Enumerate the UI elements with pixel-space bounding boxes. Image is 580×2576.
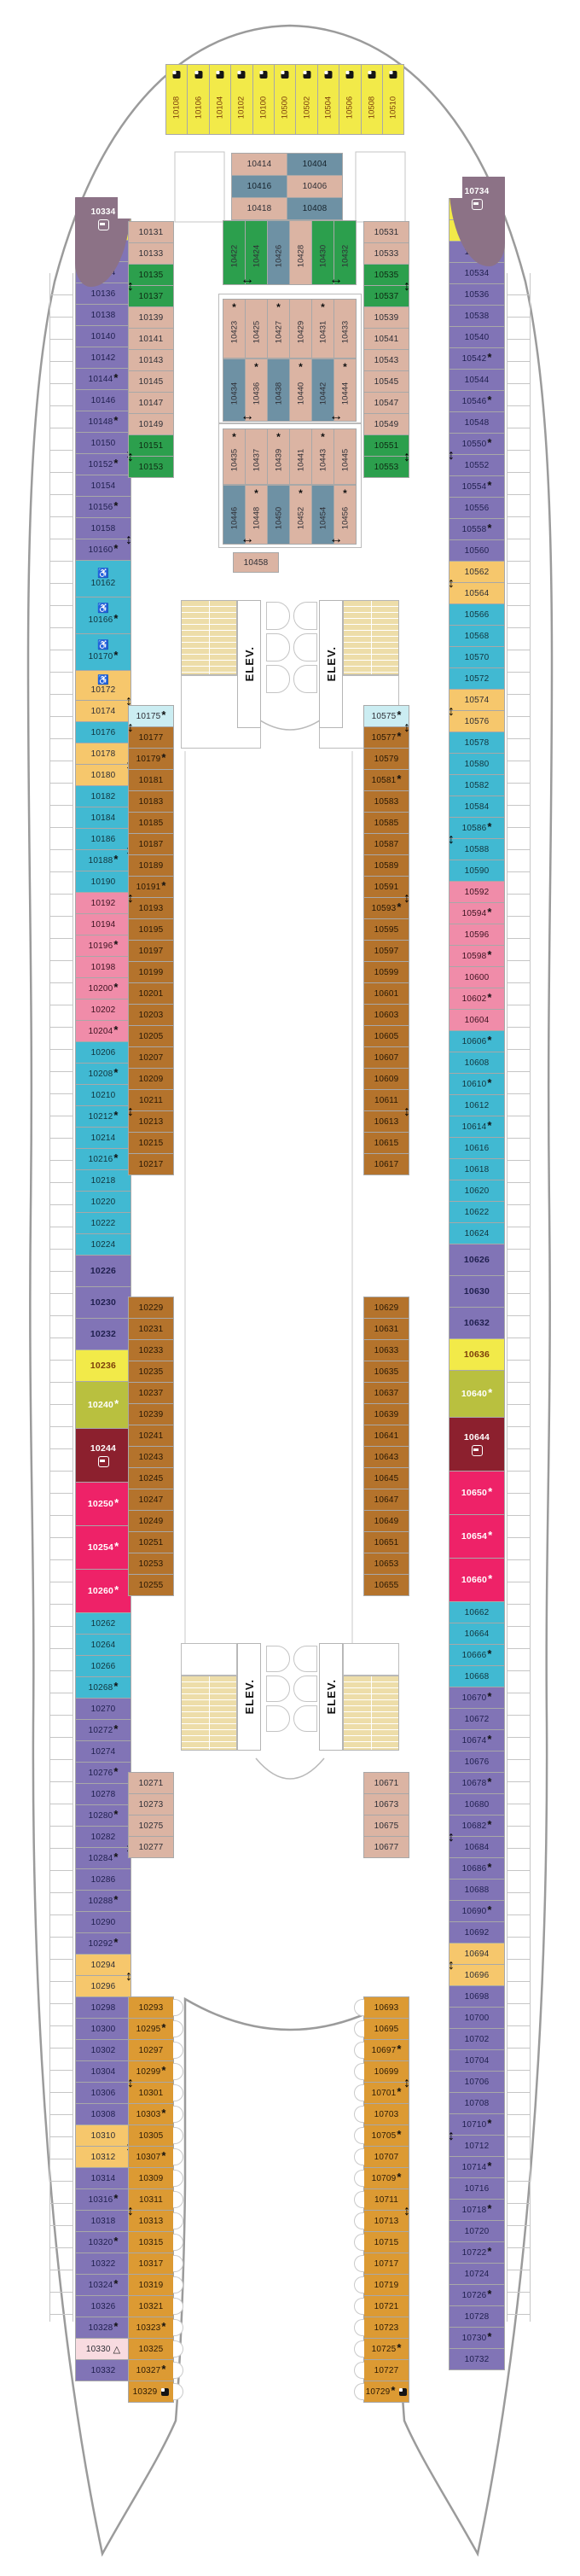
cabin-number: 10616: [465, 1144, 490, 1153]
third-berth-asterisk: *: [299, 487, 303, 499]
cabin-10554: 10554*: [449, 475, 505, 498]
cabin-10723: 10723: [363, 2317, 409, 2339]
third-berth-asterisk: *: [487, 1034, 491, 1046]
cabin-number: 10140: [91, 332, 116, 341]
cabin-number: 10725: [372, 2345, 397, 2354]
cabin-10300: 10300: [75, 2018, 131, 2040]
cabin-number: 10710: [462, 2120, 487, 2130]
third-berth-asterisk: *: [276, 301, 281, 313]
window-icon: [259, 71, 267, 79]
cabin-number: 10222: [91, 1219, 116, 1228]
cabin-number: 10688: [465, 1885, 490, 1895]
cabin-10235: 10235: [128, 1361, 174, 1383]
cabin-10284: 10284*: [75, 1847, 131, 1869]
cabin-10703: 10703: [363, 2103, 409, 2125]
cabin-10253: 10253: [128, 1553, 174, 1575]
cabin-number: 10693: [374, 2003, 399, 2013]
third-berth-asterisk: *: [487, 1647, 491, 1660]
cabin-number: 10145: [139, 377, 164, 387]
cabin-10575: 10575*↕: [363, 705, 409, 727]
cabin-number: 10703: [374, 2110, 399, 2119]
cabin-number: 10564: [465, 589, 490, 598]
cabin-number: 10694: [465, 1949, 490, 1959]
cabin-10174: 10174: [75, 700, 131, 722]
cabin-10660: 10660*: [449, 1558, 505, 1602]
cabin-10719: 10719: [363, 2274, 409, 2296]
cabin-10282: 10282↕: [75, 1826, 131, 1848]
cabin-number: 10166: [89, 615, 113, 625]
cabin-number: 10156: [89, 503, 113, 512]
third-berth-asterisk: *: [113, 2235, 118, 2247]
window-icon: [161, 2388, 169, 2396]
cabin-number: 10408: [303, 204, 328, 213]
cabin-number: 10640: [461, 1389, 487, 1399]
cabin-number: 10508: [367, 96, 376, 119]
cabin-10136: 10136: [75, 283, 131, 305]
cabin-number: 10684: [465, 1843, 490, 1852]
cabin-number: 10217: [139, 1160, 164, 1169]
cabin-section: 10671106731067510677: [363, 1773, 409, 1858]
wheelchair-icon: ♿: [97, 569, 109, 580]
cabin-10542: 10542*: [449, 347, 505, 370]
cabin-10566: 10566: [449, 603, 505, 626]
third-berth-asterisk: *: [487, 1076, 491, 1089]
connecting-staterooms-arrow: ↕: [448, 2130, 455, 2143]
cabin-10215: 10215: [128, 1132, 174, 1154]
cabin-number: 10243: [139, 1453, 164, 1462]
cabin-10197: 10197: [128, 940, 174, 962]
cabin-number: 10704: [465, 2056, 490, 2066]
cabin-number: 10729: [366, 2387, 391, 2397]
cabin-number: 10568: [465, 632, 490, 641]
cabin-number: 10428: [296, 245, 305, 267]
cabin-10641: 10641: [363, 1425, 409, 1447]
third-berth-asterisk: *: [487, 1775, 491, 1788]
cabin-number: 10255: [139, 1581, 164, 1590]
connecting-staterooms-arrow: ↕: [127, 721, 134, 735]
cabin-10597: 10597: [363, 940, 409, 962]
cabin-10196: 10196*: [75, 935, 131, 957]
cabin-number: 10554: [462, 482, 487, 492]
third-berth-asterisk: *: [113, 1151, 118, 1164]
service-room: [181, 1643, 237, 1676]
cabin-10605: 10605: [363, 1025, 409, 1047]
cabin-number: 10653: [374, 1559, 399, 1569]
cabin-number: 10322: [91, 2259, 116, 2269]
connecting-staterooms-arrow: ↕: [403, 451, 410, 464]
cabin-number: 10310: [91, 2131, 116, 2141]
cabin-10260: 10260*: [75, 1569, 131, 1613]
cabin-number: 10272: [89, 1726, 113, 1735]
cabin-number: 10329: [133, 2387, 158, 2397]
cabin-number: 10578: [465, 738, 490, 748]
cabin-number: 10585: [374, 819, 399, 828]
cabin-number: 10635: [374, 1367, 399, 1377]
cabin-10301: 10301: [128, 2082, 174, 2104]
cabin-10633: 10633: [363, 1339, 409, 1361]
window-icon: [173, 71, 181, 79]
window-icon: [303, 71, 310, 79]
cabin-number: 10612: [465, 1101, 490, 1110]
cabin-10728: 10728: [449, 2305, 505, 2328]
connecting-staterooms-arrow: ↔: [241, 273, 254, 287]
cabin-number: 10576: [465, 717, 490, 726]
cabin-10295: 10295*: [128, 2018, 174, 2040]
cabin-10450: 10450: [267, 485, 290, 545]
cabin-number: 10324: [89, 2281, 113, 2290]
cabin-number: 10301: [139, 2089, 164, 2098]
cabin-10433: 10433: [333, 299, 357, 358]
cabin-10604: 10604: [449, 1009, 505, 1031]
cabin-10506: 10506: [339, 64, 361, 135]
cabin-section: 10575*↕10577*1057910581*1058310585105871…: [363, 706, 409, 1175]
cabin-number: 10278: [91, 1790, 116, 1799]
cabin-number: 10548: [465, 418, 490, 428]
cabin-number: 10626: [464, 1255, 490, 1265]
stairs-mid-port: [181, 1676, 237, 1751]
cabin-number: 10639: [374, 1410, 399, 1419]
suite-icon: [98, 219, 109, 230]
cabin-10142: 10142: [75, 347, 131, 369]
cabin-10536: 10536: [449, 283, 505, 306]
cabin-10100: 10100: [252, 64, 275, 135]
cabin-10158: 10158↕: [75, 517, 131, 539]
connecting-staterooms-arrow: ↕: [127, 1105, 134, 1119]
forward-interior-pairs: 104141040410416104061041810408: [232, 154, 343, 220]
third-berth-asterisk: *: [113, 938, 118, 951]
cabin-number: 10702: [465, 2035, 490, 2044]
cabin-10693: 10693: [363, 1996, 409, 2019]
cabin-number: 10320: [89, 2238, 113, 2247]
cabin-10692: 10692: [449, 1921, 505, 1944]
cabin-number: 10666: [462, 1651, 487, 1660]
cabin-10626: 10626: [449, 1244, 505, 1276]
cabin-number: 10268: [89, 1683, 113, 1693]
cabin-10302: 10302: [75, 2039, 131, 2061]
third-berth-asterisk: *: [487, 1119, 491, 1132]
cabin-10674: 10674*: [449, 1729, 505, 1751]
cabin-number: 10206: [91, 1048, 116, 1058]
cabin-10166: ♿10166*: [75, 597, 131, 634]
cabin-10670: 10670*: [449, 1687, 505, 1709]
cabin-number: 10204: [89, 1027, 113, 1036]
cabin-section: 101311013310135↕101371013910141101431014…: [128, 222, 174, 478]
cabin-number: 10184: [91, 813, 116, 823]
cabin-10587: 10587: [363, 833, 409, 855]
cabin-10243: 10243: [128, 1446, 174, 1468]
stairs-forward-stbd: [343, 600, 399, 675]
cabin-number: 10662: [465, 1608, 490, 1617]
interior-vertical-block: 10434↔*1043610438*1044010442↔*10444: [223, 358, 357, 422]
cabin-number: 10193: [139, 904, 164, 913]
cabin-10216: 10216*: [75, 1148, 131, 1170]
cabin-number: 10696: [465, 1971, 490, 1980]
cabin-10608: 10608: [449, 1052, 505, 1074]
cabin-10207: 10207: [128, 1046, 174, 1069]
third-berth-asterisk: *: [113, 1808, 118, 1821]
cabin-10706: 10706: [449, 2071, 505, 2093]
cabin-number: 10647: [374, 1495, 399, 1505]
cabin-number: 10602: [462, 994, 487, 1004]
stairs-mid-stbd: [343, 1676, 399, 1751]
cabin-number: 10610: [462, 1080, 487, 1089]
cabin-number: 10620: [465, 1186, 490, 1196]
third-berth-asterisk: *: [113, 2277, 118, 2290]
cabin-number: 10180: [91, 771, 116, 780]
cabin-10711: 10711↕: [363, 2188, 409, 2211]
cabin-10404: 10404: [287, 153, 343, 176]
cabin-section: 1052610528105301053210534105361053810540…: [449, 178, 505, 2370]
cabin-number: 10154: [91, 481, 116, 491]
third-berth-asterisk: *: [487, 2117, 491, 2130]
cabin-10270: 10270: [75, 1698, 131, 1720]
cabin-number: 10309: [139, 2174, 164, 2183]
cabin-10699: 10699↕: [363, 2060, 409, 2083]
cabin-number: 10160: [89, 545, 113, 555]
cabin-10193: 10193: [128, 897, 174, 919]
cabin-number: 10198: [91, 963, 116, 972]
cabin-number: 10294: [91, 1961, 116, 1970]
cabin-10556: 10556: [449, 497, 505, 519]
cabin-number: 10734: [465, 187, 490, 196]
cabin-10416: 10416: [231, 175, 287, 198]
cabin-number: 10302: [91, 2046, 116, 2055]
cabin-number: 10699: [374, 2067, 399, 2077]
cabin-number: 10541: [374, 335, 399, 344]
cabin-number: 10108: [172, 96, 182, 119]
cabin-10293: 10293: [128, 1996, 174, 2019]
third-berth-asterisk: *: [487, 479, 491, 492]
cabin-10217: 10217: [128, 1153, 174, 1175]
cabin-10601: 10601: [363, 982, 409, 1005]
cabin-10574: 10574↕: [449, 689, 505, 711]
cabin-10429: 10429: [289, 299, 312, 358]
cabin-number: 10668: [465, 1672, 490, 1681]
cabin-10701: 10701*: [363, 2082, 409, 2104]
corridor-arch-forward: [258, 719, 322, 730]
cabin-number: 10276: [89, 1769, 113, 1778]
cabin-10208: 10208*: [75, 1063, 131, 1085]
cabin-10206: 10206: [75, 1041, 131, 1064]
cabin-10541: 10541: [363, 328, 409, 350]
cabin-number: 10230: [90, 1297, 116, 1308]
cabin-number: 10138: [91, 311, 116, 320]
cabin-number: 10566: [465, 610, 490, 620]
cabin-10577: 10577*: [363, 726, 409, 749]
cabin-number: 10614: [462, 1122, 487, 1132]
window-icon: [194, 71, 202, 79]
third-berth-asterisk: *: [113, 1850, 118, 1863]
cabin-10406: 10406: [287, 175, 343, 198]
cabin-number: 10292: [89, 1939, 113, 1949]
third-berth-asterisk: *: [321, 301, 325, 313]
cabin-10102: 10102: [230, 64, 252, 135]
cabin-number: 10186: [91, 835, 116, 844]
third-berth-asterisk: *: [114, 1583, 119, 1596]
cabin-10640: 10640*: [449, 1370, 505, 1418]
cabin-10446: 10446↔: [223, 485, 246, 545]
cabin-number: 10701: [372, 2089, 397, 2098]
cabin-number: 10280: [89, 1811, 113, 1821]
bow-structure-stbd: [356, 152, 405, 222]
cabin-10214: 10214: [75, 1127, 131, 1149]
hull-notch: [444, 176, 462, 198]
cabin-number: 10293: [139, 2003, 164, 2013]
cabin-10274: 10274: [75, 1740, 131, 1763]
cabin-10156: 10156*: [75, 496, 131, 518]
cabin-number: 10214: [91, 1134, 116, 1143]
cabin-number: 10700: [465, 2014, 490, 2023]
cabin-number: 10543: [374, 356, 399, 365]
cabin-number: 10423: [229, 321, 239, 343]
cabin-number: 10215: [139, 1139, 164, 1148]
cabin-10558: 10558*: [449, 518, 505, 540]
cabin-10275: 10275: [128, 1815, 174, 1837]
cabin-number: 10327: [136, 2366, 161, 2375]
cabin-number: 10582: [465, 781, 490, 790]
cabin-10172: ♿10172↕: [75, 670, 131, 701]
cabin-number: 10632: [464, 1318, 490, 1328]
third-berth-asterisk: *: [321, 431, 325, 443]
elevator-car: [293, 665, 317, 693]
cabin-10592: 10592: [449, 881, 505, 903]
cabin-10732: 10732: [449, 2348, 505, 2370]
elevator-label-forward-port: ELEV.: [237, 600, 261, 728]
cabin-10299: 10299*↕: [128, 2060, 174, 2083]
cabin-10204: 10204*: [75, 1020, 131, 1042]
cabin-10543: 10543: [363, 349, 409, 371]
cabin-number: 10418: [247, 204, 272, 213]
cabin-number: 10262: [91, 1619, 116, 1629]
cabin-number: 10722: [462, 2248, 487, 2258]
cabin-number: 10540: [465, 333, 490, 342]
cabin-10170: ♿10170*: [75, 633, 131, 671]
cabin-10162: ♿10162: [75, 560, 131, 597]
cabin-number: 10323: [136, 2323, 161, 2333]
cabin-10200: 10200*: [75, 977, 131, 1000]
pair-row: 1041410404: [232, 154, 343, 176]
cabin-10722: 10722*: [449, 2241, 505, 2264]
third-berth-asterisk: *: [397, 730, 401, 743]
third-berth-asterisk: *: [487, 2288, 491, 2300]
third-berth-asterisk: *: [232, 301, 236, 313]
cabin-number: 10430: [318, 245, 328, 267]
cabin-number: 10445: [340, 449, 350, 471]
cabin-10310: 10310↕: [75, 2124, 131, 2147]
window-icon: [346, 71, 354, 79]
cabin-10426: 10426: [267, 220, 290, 285]
cabin-10303: 10303*: [128, 2103, 174, 2125]
third-berth-asterisk: *: [487, 1818, 491, 1831]
cabin-number: 10698: [465, 1992, 490, 2002]
cabin-number: 10551: [374, 441, 399, 451]
cabin-number: 10600: [465, 973, 490, 982]
cabin-10591: 10591↕: [363, 876, 409, 898]
cabin-10230: 10230: [75, 1286, 131, 1319]
cabin-10194: 10194: [75, 913, 131, 935]
cabin-10224: 10224: [75, 1233, 131, 1256]
cabin-10438: 10438: [267, 358, 290, 422]
cabin-10596: 10596: [449, 924, 505, 946]
cabin-10454: 10454↔: [311, 485, 334, 545]
cabin-number: 10441: [296, 449, 305, 471]
cabin-number: 10318: [91, 2217, 116, 2226]
cabin-number: 10552: [465, 461, 490, 470]
third-berth-asterisk: *: [113, 2192, 118, 2205]
cabin-number: 10592: [465, 888, 490, 897]
cabin-10327: 10327*: [128, 2359, 174, 2381]
cabin-number: 10158: [91, 524, 116, 533]
cabin-10452: *10452: [289, 485, 312, 545]
cabin-10195: 10195: [128, 918, 174, 941]
cabin-10643: 10643: [363, 1446, 409, 1468]
cabin-number: 10581: [372, 776, 397, 785]
cabin-number: 10142: [91, 353, 116, 363]
cabin-10709: 10709*: [363, 2167, 409, 2189]
third-berth-asterisk: *: [114, 1496, 119, 1509]
cabin-10647: 10647: [363, 1489, 409, 1511]
third-berth-asterisk: *: [161, 708, 165, 721]
elevator-label-forward-stbd: ELEV.: [319, 600, 343, 728]
cabin-10218: 10218: [75, 1169, 131, 1192]
cabin-10690: 10690*: [449, 1900, 505, 1922]
cabin-number: 10404: [303, 160, 328, 169]
third-berth-asterisk: *: [113, 1109, 118, 1122]
cabin-number: 10615: [374, 1139, 399, 1148]
cabin-number: 10185: [139, 819, 164, 828]
cabin-number: 10435: [229, 449, 239, 471]
cabin-number: 10139: [139, 313, 164, 323]
cabin-number: 10176: [91, 728, 116, 737]
cabin-10250: 10250*: [75, 1482, 131, 1526]
third-berth-asterisk: *: [487, 1733, 491, 1746]
cabin-10442: 10442↔: [311, 358, 334, 422]
cabin-10220: 10220: [75, 1191, 131, 1213]
cabin-10721: 10721: [363, 2295, 409, 2317]
cabin-10708: 10708: [449, 2092, 505, 2114]
connecting-staterooms-arrow: ↕: [448, 705, 455, 719]
cabin-number: 10177: [139, 733, 164, 743]
cabin-number: 10151: [139, 441, 164, 451]
cabin-10704: 10704: [449, 2049, 505, 2072]
cabin-number: 10641: [374, 1431, 399, 1441]
cabin-number: 10715: [374, 2238, 399, 2247]
cabin-10710: 10710*↕: [449, 2113, 505, 2136]
cabin-number: 10728: [465, 2312, 490, 2322]
cabin-number: 10452: [296, 507, 305, 529]
third-berth-asterisk: *: [161, 2320, 165, 2333]
cabin-10319: 10319: [128, 2274, 174, 2296]
cabin-number: 10266: [91, 1662, 116, 1671]
service-room: [343, 1643, 399, 1676]
cabin-number: 10536: [465, 290, 490, 300]
cabin-number: 10316: [89, 2195, 113, 2205]
cabin-number: 10650: [461, 1488, 487, 1498]
cabin-10249: 10249: [128, 1510, 174, 1532]
cabin-section: 1022910231102331023510237102391024110243…: [128, 1297, 174, 1596]
cabin-number: 10102: [237, 96, 246, 119]
interior-vertical-block: *1043510437*1043910441*1044310445: [223, 428, 357, 485]
window-icon: [281, 71, 289, 79]
cabin-number: 10433: [340, 321, 350, 343]
cabin-10149: 10149: [128, 413, 174, 435]
third-berth-asterisk: *: [488, 1572, 492, 1585]
cabin-number: 10670: [462, 1693, 487, 1703]
connecting-staterooms-arrow: ↕: [448, 577, 455, 591]
cabin-number: 10502: [302, 96, 311, 119]
cabin-number: 10334: [91, 207, 116, 217]
cabin-number: 10249: [139, 1517, 164, 1526]
